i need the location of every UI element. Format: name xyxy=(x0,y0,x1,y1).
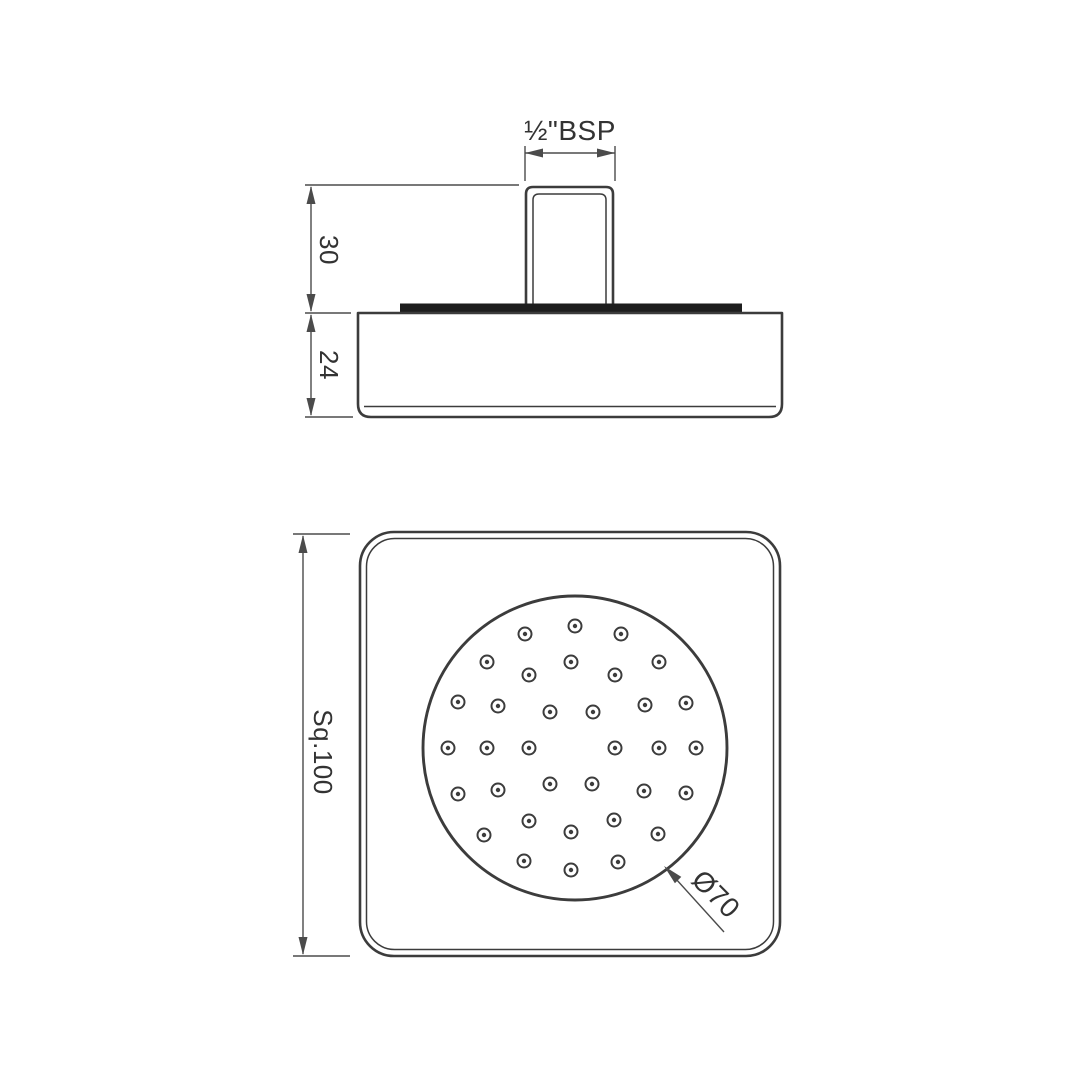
nozzle-dot xyxy=(527,819,531,823)
nozzle-dot xyxy=(456,792,460,796)
nozzle xyxy=(523,742,536,755)
pipe-stem-inner-wall xyxy=(533,194,606,304)
spray-face-circle xyxy=(423,596,727,900)
nozzle-dot xyxy=(496,704,500,708)
stem-height-dimension-label: 30 xyxy=(314,235,344,265)
nozzle xyxy=(523,669,536,682)
nozzle xyxy=(653,656,666,669)
nozzle-dot xyxy=(613,746,617,750)
nozzle-dot xyxy=(619,632,623,636)
nozzle xyxy=(690,742,703,755)
nozzle-dot xyxy=(569,830,573,834)
side-view-dimensions: ½"BSP 30 24 xyxy=(305,115,616,417)
nozzle-dot xyxy=(657,660,661,664)
nozzle-dot xyxy=(485,746,489,750)
nozzle-dot xyxy=(527,746,531,750)
nozzle-dot xyxy=(548,710,552,714)
dim-arrow-down xyxy=(307,398,316,416)
nozzle xyxy=(639,699,652,712)
nozzle xyxy=(612,856,625,869)
nozzle-dot xyxy=(656,832,660,836)
nozzle xyxy=(609,742,622,755)
nozzle-dot xyxy=(616,860,620,864)
nozzle xyxy=(638,785,651,798)
face-square-dimension-label: Sq.100 xyxy=(308,709,338,794)
nozzle-dot xyxy=(684,791,688,795)
nozzle xyxy=(481,656,494,669)
nozzle-dot xyxy=(573,624,577,628)
nozzle xyxy=(587,706,600,719)
nozzle-dot xyxy=(523,632,527,636)
nozzle xyxy=(680,697,693,710)
nozzle xyxy=(492,784,505,797)
nozzle xyxy=(680,787,693,800)
spray-diameter-label: Ø70 xyxy=(686,864,746,924)
nozzle xyxy=(544,778,557,791)
nozzle-dot xyxy=(591,710,595,714)
nozzle xyxy=(442,742,455,755)
nozzle-dot xyxy=(694,746,698,750)
dim-arrow-down xyxy=(299,937,308,955)
nozzle xyxy=(544,706,557,719)
nozzle xyxy=(565,826,578,839)
shower-head-technical-drawing: ½"BSP 30 24 xyxy=(0,0,1080,1080)
nozzle-dot xyxy=(613,673,617,677)
nozzle-dot xyxy=(496,788,500,792)
dim-arrow-up xyxy=(299,535,308,553)
nozzle-dot xyxy=(456,700,460,704)
nozzle-dot xyxy=(590,782,594,786)
nozzle xyxy=(518,855,531,868)
nozzle-dot xyxy=(485,660,489,664)
nozzle xyxy=(523,815,536,828)
nozzle xyxy=(565,864,578,877)
nozzle xyxy=(569,620,582,633)
nozzle-dot xyxy=(642,789,646,793)
pipe-stem-outline xyxy=(526,187,613,304)
nozzle xyxy=(609,669,622,682)
thread-dimension-label: ½"BSP xyxy=(524,115,616,146)
nozzle xyxy=(652,828,665,841)
nozzle-dot xyxy=(446,746,450,750)
drawing-page: ½"BSP 30 24 xyxy=(0,0,1080,1080)
dim-arrow-left xyxy=(525,149,543,158)
nozzle-dot xyxy=(657,746,661,750)
nozzle xyxy=(452,696,465,709)
nozzle xyxy=(608,814,621,827)
body-outline xyxy=(358,313,782,417)
nozzle-field xyxy=(442,620,703,877)
body-depth-dimension-label: 24 xyxy=(314,350,344,380)
dim-arrow-up xyxy=(307,314,316,332)
gasket-plate xyxy=(400,304,742,314)
nozzle xyxy=(615,628,628,641)
nozzle-dot xyxy=(684,701,688,705)
nozzle-dot xyxy=(522,859,526,863)
nozzle-dot xyxy=(643,703,647,707)
nozzle xyxy=(586,778,599,791)
nozzle xyxy=(478,829,491,842)
nozzle xyxy=(519,628,532,641)
nozzle-dot xyxy=(569,660,573,664)
nozzle xyxy=(452,788,465,801)
nozzle xyxy=(565,656,578,669)
nozzle-dot xyxy=(482,833,486,837)
side-view xyxy=(358,187,782,417)
nozzle-dot xyxy=(527,673,531,677)
nozzle xyxy=(653,742,666,755)
nozzle-dot xyxy=(612,818,616,822)
leader-arrowhead xyxy=(664,866,681,883)
dim-arrow-right xyxy=(597,149,615,158)
dim-arrow-up xyxy=(307,186,316,204)
nozzle xyxy=(492,700,505,713)
nozzle-dot xyxy=(548,782,552,786)
nozzle xyxy=(481,742,494,755)
dim-arrow-down xyxy=(307,294,316,312)
nozzle-dot xyxy=(569,868,573,872)
